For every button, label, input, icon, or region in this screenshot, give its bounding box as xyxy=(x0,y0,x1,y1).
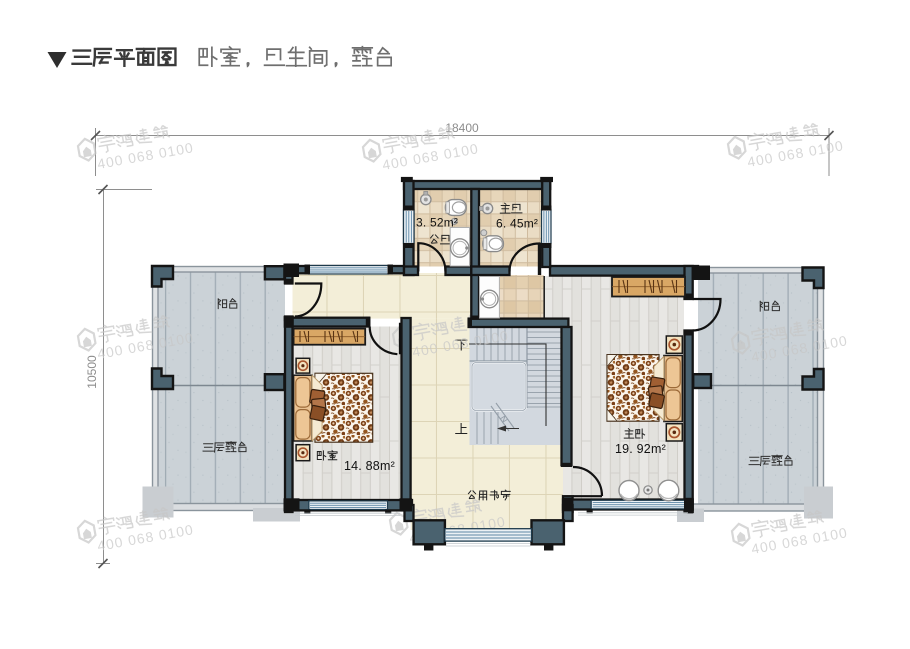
svg-text:14. 88m²: 14. 88m² xyxy=(344,459,395,473)
svg-text:6. 45m²: 6. 45m² xyxy=(496,217,538,231)
svg-text:10500: 10500 xyxy=(85,355,99,389)
svg-text:19. 92m²: 19. 92m² xyxy=(615,442,666,456)
